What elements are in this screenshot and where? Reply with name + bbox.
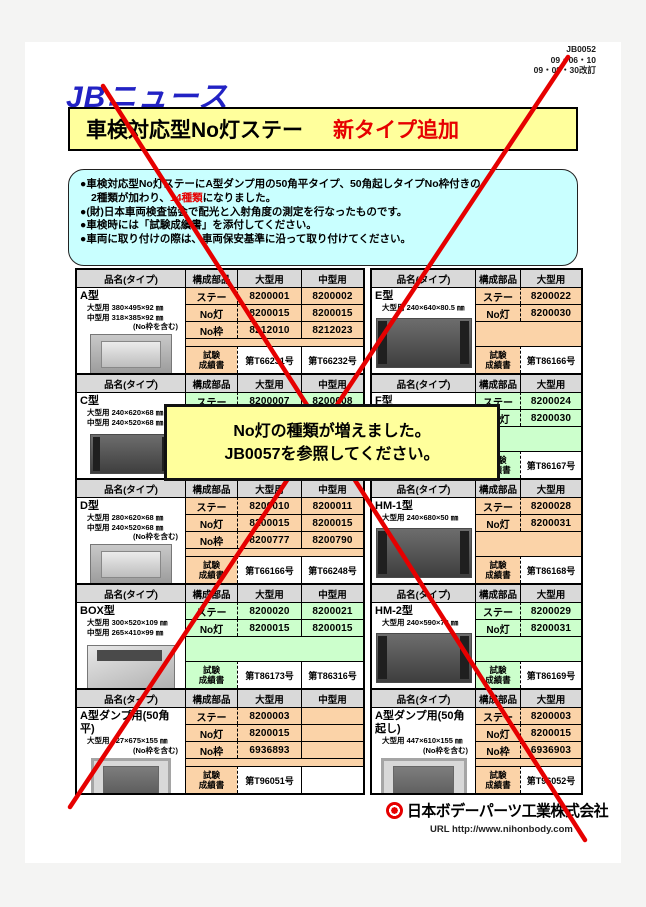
spacer-cell (475, 636, 581, 661)
part-label: ステー (185, 287, 237, 304)
part-label: No枠 (475, 741, 520, 758)
product-dimension: 大型用 240×680×50 ㎜ (375, 513, 472, 523)
column-header-component: 構成部品 (475, 480, 520, 497)
part-number-medium: 8200015 (301, 304, 363, 321)
certificate-number-medium (301, 766, 363, 793)
certificate-label-line: 試験 (489, 770, 506, 780)
product-note: (No枠を含む) (80, 746, 182, 755)
certificate-label-line: 成績書 (199, 360, 225, 370)
product-table-dump-raised: 品名(タイプ)構成部品大型用A型ダンプ用(50角起し)大型用 447×610×1… (370, 688, 583, 795)
column-header-large: 大型用 (520, 375, 581, 392)
product-name-cell: A型大型用 380×495×92 ㎜中型用 318×385×92 ㎜(No枠を含… (77, 287, 185, 373)
part-number-medium: 8200015 (301, 514, 363, 531)
part-label: No灯 (475, 514, 520, 531)
certificate-number-large: 第T66166号 (237, 556, 301, 583)
part-label: ステー (475, 287, 520, 304)
part-number-large: 8200022 (520, 287, 581, 304)
part-number-large: 8200015 (520, 724, 581, 741)
column-header-large: 大型用 (237, 585, 301, 602)
part-number-large: 6936903 (520, 741, 581, 758)
company-bullseye-icon (386, 802, 403, 819)
part-label: No灯 (185, 619, 237, 636)
tables-column-right: 品名(タイプ)構成部品大型用E型大型用 240×640×80.5 ㎜ステー820… (370, 268, 583, 795)
product-table-hm1: 品名(タイプ)構成部品大型用HM-1型大型用 240×680×50 ㎜ステー82… (370, 478, 583, 585)
certificate-number-medium: 第T66232号 (301, 346, 363, 373)
callout-line: JB0057を参照してください。 (224, 443, 439, 466)
spacer-cell (475, 758, 581, 766)
product-name: HM-2型 (375, 605, 472, 618)
part-label: ステー (185, 497, 237, 514)
product-name-cell: HM-2型大型用 240×590×78 ㎜ (372, 602, 475, 688)
column-header-component: 構成部品 (475, 585, 520, 602)
product-dimension: 大型用 300×520×109 ㎜ (80, 618, 182, 628)
product-photo (90, 434, 172, 474)
part-number-large: 8200020 (237, 602, 301, 619)
certificate-label: 試験成績書 (475, 766, 520, 793)
certificate-label-line: 試験 (203, 350, 220, 360)
notice-box: ●車検対応型No灯ステーにA型ダンプ用の50角平タイプ、50角起しタイプNo枠付… (68, 169, 578, 266)
part-number-medium: 8200011 (301, 497, 363, 514)
notice-line: ●車検対応型No灯ステーにA型ダンプ用の50角平タイプ、50角起しタイプNo枠付… (80, 178, 566, 192)
part-number-large: 8200001 (237, 287, 301, 304)
part-label: No灯 (185, 514, 237, 531)
part-label: No灯 (475, 304, 520, 321)
column-header-component: 構成部品 (185, 585, 237, 602)
certificate-label: 試験成績書 (475, 661, 520, 688)
company-name: 日本ボデーパーツ工業株式会社 (407, 799, 608, 821)
certificate-label: 試験成績書 (475, 346, 520, 373)
title-banner: 車検対応型No灯ステー 新タイプ追加 (68, 107, 578, 151)
product-dimension: 中型用 265×410×99 ㎜ (80, 628, 182, 638)
column-header-component: 構成部品 (475, 690, 520, 707)
column-header-component: 構成部品 (475, 270, 520, 287)
product-name-cell: A型ダンプ用(50角起し)大型用 447×610×155 ㎜(No枠を含む) (372, 707, 475, 793)
certificate-number-large: 第T96051号 (237, 766, 301, 793)
product-name: HM-1型 (375, 500, 472, 513)
product-table-dump-flat: 品名(タイプ)構成部品大型用中型用A型ダンプ用(50角平)大型用 427×675… (75, 688, 365, 795)
product-name: A型 (80, 290, 182, 303)
page-title: 車検対応型No灯ステー (86, 114, 303, 144)
column-header-name: 品名(タイプ) (77, 690, 185, 707)
product-photo (90, 544, 172, 583)
company-url: URL http://www.nihonbody.com (430, 824, 617, 835)
certificate-label-line: 成績書 (199, 780, 225, 790)
product-name: A型ダンプ用(50角起し) (375, 710, 472, 736)
certificate-number-medium: 第T86316号 (301, 661, 363, 688)
certificate-label: 試験成績書 (475, 556, 520, 583)
product-table-e: 品名(タイプ)構成部品大型用E型大型用 240×640×80.5 ㎜ステー820… (370, 268, 583, 375)
notice-line: ●(財)日本車両検査協会で配光と入射角度の測定を行なったものです。 (80, 206, 566, 220)
column-header-medium: 中型用 (301, 585, 363, 602)
certificate-number-large: 第T86173号 (237, 661, 301, 688)
column-header-large: 大型用 (520, 690, 581, 707)
product-dimension: 大型用 380×495×92 ㎜ (80, 303, 182, 313)
product-name: A型ダンプ用(50角平) (80, 710, 182, 736)
product-dimension: 中型用 318×385×92 ㎜ (80, 313, 182, 323)
product-photo (376, 528, 472, 578)
product-dimension: 大型用 447×610×155 ㎜ (375, 736, 472, 746)
product-photo (376, 633, 472, 683)
part-number-large: 8200030 (520, 304, 581, 321)
column-header-large: 大型用 (237, 690, 301, 707)
notice-line: ●車検時には「試験成績書」を添付してください。 (80, 219, 566, 233)
part-number-large: 8200777 (237, 531, 301, 548)
product-table-d: 品名(タイプ)構成部品大型用中型用D型大型用 280×620×68 ㎜中型用 2… (75, 478, 365, 585)
certificate-label-line: 試験 (203, 665, 220, 675)
spacer-cell (475, 321, 581, 346)
part-number-large: 8200010 (237, 497, 301, 514)
column-header-name: 品名(タイプ) (77, 480, 185, 497)
certificate-label: 試験成績書 (185, 346, 237, 373)
new-type-badge: 新タイプ追加 (333, 114, 459, 144)
certificate-number-large: 第T66231号 (237, 346, 301, 373)
certificate-number-medium: 第T66248号 (301, 556, 363, 583)
product-name-cell: D型大型用 280×620×68 ㎜中型用 240×520×68 ㎜(No枠を含… (77, 497, 185, 583)
product-name: E型 (375, 290, 472, 303)
part-label: No枠 (185, 321, 237, 338)
certificate-label: 試験成績書 (185, 661, 237, 688)
certificate-label: 試験成績書 (185, 766, 237, 793)
product-dimension: 大型用 427×675×155 ㎜ (80, 736, 182, 746)
spacer-cell (185, 548, 363, 556)
part-number-large: 8200003 (237, 707, 301, 724)
product-name-cell: E型大型用 240×640×80.5 ㎜ (372, 287, 475, 373)
doc-number: JB0052 (534, 44, 596, 55)
column-header-component: 構成部品 (185, 270, 237, 287)
column-header-name: 品名(タイプ) (372, 585, 475, 602)
certificate-label-line: 成績書 (485, 780, 511, 790)
part-label: No枠 (185, 741, 237, 758)
product-photo (91, 758, 171, 794)
product-dimension: 大型用 280×620×68 ㎜ (80, 513, 182, 523)
certificate-number-large: 第T86169号 (520, 661, 581, 688)
column-header-medium: 中型用 (301, 690, 363, 707)
product-photo (87, 645, 175, 688)
part-label: No枠 (185, 531, 237, 548)
part-number-medium (301, 707, 363, 724)
part-number-medium (301, 724, 363, 741)
column-header-name: 品名(タイプ) (372, 270, 475, 287)
spacer-cell (475, 531, 581, 556)
column-header-name: 品名(タイプ) (77, 270, 185, 287)
part-number-large: 8200003 (520, 707, 581, 724)
column-header-medium: 中型用 (301, 270, 363, 287)
part-number-large: 8200030 (520, 409, 581, 426)
part-number-large: 8200031 (520, 619, 581, 636)
part-label: ステー (475, 602, 520, 619)
product-name-cell: A型ダンプ用(50角平)大型用 427×675×155 ㎜(No枠を含む) (77, 707, 185, 793)
certificate-number-large: 第T86168号 (520, 556, 581, 583)
part-number-large: 8212010 (237, 321, 301, 338)
column-header-name: 品名(タイプ) (77, 585, 185, 602)
certificate-label: 試験成績書 (185, 556, 237, 583)
column-header-large: 大型用 (520, 270, 581, 287)
part-number-medium: 8200015 (301, 619, 363, 636)
certificate-label-line: 成績書 (485, 360, 511, 370)
notice-line: ●車両に取り付けの際は、車両保安基準に沿って取り付けてください。 (80, 233, 566, 247)
column-header-name: 品名(タイプ) (372, 690, 475, 707)
product-name-cell: BOX型大型用 300×520×109 ㎜中型用 265×410×99 ㎜ (77, 602, 185, 688)
highlighted-count: 14種類 (170, 192, 203, 204)
certificate-label-line: 試験 (203, 770, 220, 780)
spacer-cell (185, 758, 363, 766)
part-label: ステー (475, 707, 520, 724)
document-info: JB0052 09・06・10 09・09・30改訂 (534, 44, 596, 76)
part-label: No灯 (475, 724, 520, 741)
spacer-cell (185, 338, 363, 346)
column-header-large: 大型用 (520, 480, 581, 497)
part-number-large: 8200015 (237, 724, 301, 741)
certificate-label-line: 試験 (489, 560, 506, 570)
spacer-cell (185, 636, 363, 661)
product-dimension: 中型用 240×520×68 ㎜ (80, 523, 182, 533)
part-label: ステー (185, 602, 237, 619)
certificate-label-line: 成績書 (199, 570, 225, 580)
column-header-medium: 中型用 (301, 375, 363, 392)
certificate-number-large: 第T96052号 (520, 766, 581, 793)
column-header-component: 構成部品 (185, 375, 237, 392)
product-dimension: 大型用 240×590×78 ㎜ (375, 618, 472, 628)
part-label: ステー (185, 707, 237, 724)
part-number-medium: 8200002 (301, 287, 363, 304)
part-number-large: 8200015 (237, 304, 301, 321)
part-number-large: 8200015 (237, 619, 301, 636)
certificate-label-line: 試験 (203, 560, 220, 570)
column-header-component: 構成部品 (185, 480, 237, 497)
part-number-large: 8200024 (520, 392, 581, 409)
product-note: (No枠を含む) (80, 532, 182, 541)
product-dimension: 大型用 240×640×80.5 ㎜ (375, 303, 472, 313)
product-name: D型 (80, 500, 182, 513)
notice-line: 2種類が加わり、14種類になりました。 (80, 192, 566, 206)
part-number-medium: 8200021 (301, 602, 363, 619)
part-number-large: 8200015 (237, 514, 301, 531)
certificate-number-large: 第T86166号 (520, 346, 581, 373)
column-header-component: 構成部品 (185, 690, 237, 707)
product-note: (No枠を含む) (80, 322, 182, 331)
part-number-medium: 8212023 (301, 321, 363, 338)
part-label: No灯 (185, 304, 237, 321)
part-number-large: 8200029 (520, 602, 581, 619)
column-header-name: 品名(タイプ) (372, 375, 475, 392)
product-table-hm2: 品名(タイプ)構成部品大型用HM-2型大型用 240×590×78 ㎜ステー82… (370, 583, 583, 690)
part-label: ステー (475, 497, 520, 514)
part-number-medium: 8200790 (301, 531, 363, 548)
column-header-large: 大型用 (237, 480, 301, 497)
certificate-label-line: 成績書 (485, 675, 511, 685)
part-number-large: 8200031 (520, 514, 581, 531)
product-note: (No枠を含む) (375, 746, 472, 755)
product-photo (376, 318, 472, 368)
column-header-medium: 中型用 (301, 480, 363, 497)
product-table-a: 品名(タイプ)構成部品大型用中型用A型大型用 380×495×92 ㎜中型用 3… (75, 268, 365, 375)
column-header-name: 品名(タイプ) (77, 375, 185, 392)
part-label: No灯 (185, 724, 237, 741)
product-photo (90, 334, 172, 373)
callout-line: No灯の種類が増えました。 (233, 420, 430, 443)
certificate-label-line: 成績書 (199, 675, 225, 685)
tables-column-left: 品名(タイプ)構成部品大型用中型用A型大型用 380×495×92 ㎜中型用 3… (75, 268, 365, 795)
product-photo (381, 758, 467, 794)
column-header-large: 大型用 (520, 585, 581, 602)
part-number-medium (301, 741, 363, 758)
column-header-name: 品名(タイプ) (372, 480, 475, 497)
column-header-component: 構成部品 (475, 375, 520, 392)
product-name: BOX型 (80, 605, 182, 618)
update-callout: No灯の種類が増えました。 JB0057を参照してください。 (164, 404, 500, 481)
part-label: No灯 (475, 619, 520, 636)
product-table-box: 品名(タイプ)構成部品大型用中型用BOX型大型用 300×520×109 ㎜中型… (75, 583, 365, 690)
part-number-large: 8200028 (520, 497, 581, 514)
certificate-label-line: 試験 (489, 350, 506, 360)
certificate-label-line: 成績書 (485, 570, 511, 580)
footer: 日本ボデーパーツ工業株式会社 URL http://www.nihonbody.… (386, 799, 617, 835)
column-header-large: 大型用 (237, 270, 301, 287)
column-header-large: 大型用 (237, 375, 301, 392)
certificate-number-large: 第T86167号 (520, 451, 581, 478)
certificate-label-line: 試験 (489, 665, 506, 675)
product-name-cell: HM-1型大型用 240×680×50 ㎜ (372, 497, 475, 583)
company-line: 日本ボデーパーツ工業株式会社 (386, 799, 617, 821)
part-number-large: 6936893 (237, 741, 301, 758)
doc-date-issued: 09・06・10 (534, 55, 596, 66)
doc-date-revised: 09・09・30改訂 (534, 65, 596, 76)
